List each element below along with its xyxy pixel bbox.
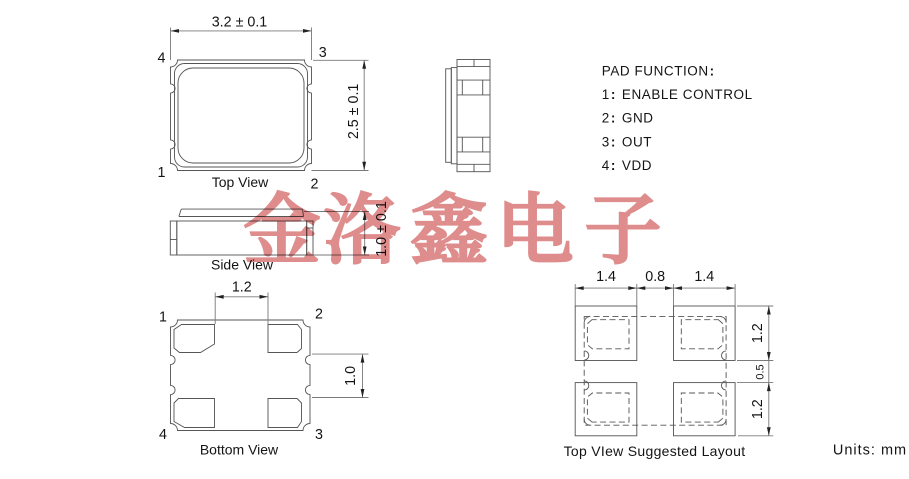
svg-text:Units: mm: Units: mm: [833, 443, 907, 459]
svg-text:Bottom View: Bottom View: [200, 442, 279, 458]
svg-text:3: 3: [319, 45, 327, 61]
svg-text:PAD FUNCTION:: PAD FUNCTION:: [602, 63, 715, 78]
svg-text:1: 1: [159, 310, 167, 326]
svg-text:1.0: 1.0: [343, 366, 359, 386]
svg-text:3: 3: [315, 427, 323, 443]
svg-text:1.4: 1.4: [596, 269, 616, 285]
svg-text:2: 2: [311, 177, 319, 193]
svg-text:4: 4: [159, 427, 167, 443]
svg-text:3:OUT: 3:OUT: [602, 135, 652, 150]
svg-text:Top VIew Suggested Layout: Top VIew Suggested Layout: [564, 443, 746, 459]
svg-text:1: 1: [158, 165, 166, 181]
svg-text:1.2: 1.2: [750, 323, 766, 343]
svg-text:2: 2: [315, 307, 323, 323]
svg-text:1.4: 1.4: [694, 269, 714, 285]
svg-text:4:VDD: 4:VDD: [602, 158, 652, 173]
svg-text:1.2: 1.2: [750, 399, 766, 419]
svg-text:3.2 ± 0.1: 3.2 ± 0.1: [212, 14, 268, 30]
svg-text:1.2: 1.2: [232, 280, 252, 296]
svg-text:2.5 ± 0.1: 2.5 ± 0.1: [346, 84, 362, 140]
svg-text:0.5: 0.5: [755, 364, 767, 379]
svg-text:4: 4: [158, 51, 166, 67]
svg-text:Top View: Top View: [212, 174, 269, 190]
svg-text:0.8: 0.8: [645, 269, 665, 285]
svg-text:1:ENABLE CONTROL: 1:ENABLE CONTROL: [602, 87, 753, 102]
svg-text:2:GND: 2:GND: [602, 111, 654, 126]
